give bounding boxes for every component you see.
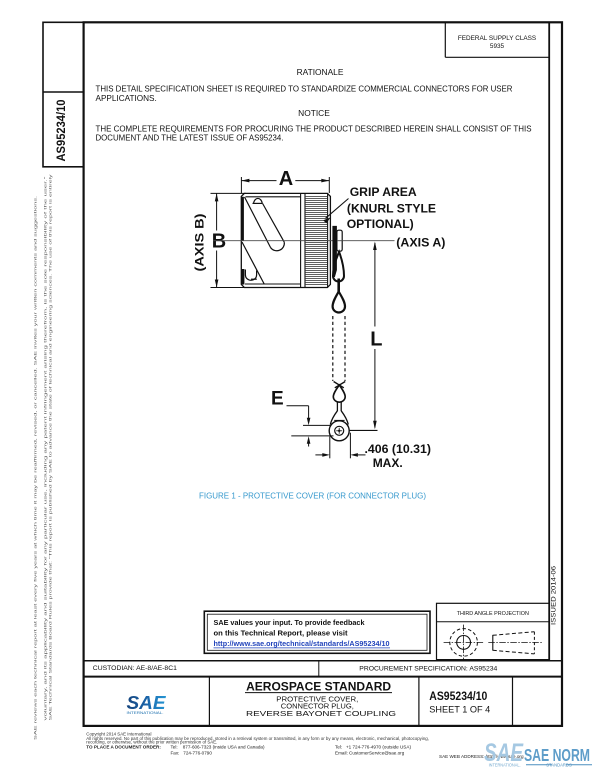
svg-text:MAX.: MAX. <box>373 456 403 470</box>
svg-text:.406 (10.31): .406 (10.31) <box>365 442 432 456</box>
svg-text:NOTICE: NOTICE <box>298 108 330 118</box>
svg-text:THIRD ANGLE PROJECTION: THIRD ANGLE PROJECTION <box>457 611 529 617</box>
svg-text:INTERNATIONAL.: INTERNATIONAL. <box>489 763 521 768</box>
svg-text:CUSTODIAN: AE-8/AE-8C1: CUSTODIAN: AE-8/AE-8C1 <box>93 665 177 672</box>
svg-text:voluntary, and its applicabili: voluntary, and its applicability and sui… <box>42 175 47 720</box>
svg-text:DOCUMENT AND THE LATEST ISSUE: DOCUMENT AND THE LATEST ISSUE OF AS95234… <box>96 134 284 143</box>
svg-text:L: L <box>370 329 382 351</box>
svg-text:SHEET 1 OF 4: SHEET 1 OF 4 <box>429 705 490 715</box>
svg-text:REVERSE BAYONET COUPLING: REVERSE BAYONET COUPLING <box>246 709 397 718</box>
svg-text:GRIP AREA: GRIP AREA <box>350 185 417 199</box>
svg-text:Email: CustomerService@sae.org: Email: CustomerService@sae.org <box>335 750 405 755</box>
svg-text:PROCUREMENT SPECIFICATION: AS9: PROCUREMENT SPECIFICATION: AS95234 <box>359 665 497 672</box>
svg-text:AS95234/10: AS95234/10 <box>54 99 68 161</box>
svg-text:SAE reviews each technical rep: SAE reviews each technical report at lea… <box>33 196 38 740</box>
svg-text:STANDARDS: STANDARDS <box>546 763 572 768</box>
svg-text:A: A <box>279 168 293 190</box>
svg-text:FEDERAL SUPPLY CLASS: FEDERAL SUPPLY CLASS <box>458 35 536 42</box>
svg-text:FIGURE 1 - PROTECTIVE COVER (F: FIGURE 1 - PROTECTIVE COVER (FOR CONNECT… <box>199 490 426 500</box>
svg-text:SAE: SAE <box>127 693 167 713</box>
svg-text:THIS DETAIL SPECIFICATION SHEE: THIS DETAIL SPECIFICATION SHEET IS REQUI… <box>96 85 513 94</box>
svg-text:5935: 5935 <box>490 43 505 50</box>
svg-text:THE COMPLETE REQUIREMENTS FOR: THE COMPLETE REQUIREMENTS FOR PROCURING … <box>96 124 533 133</box>
svg-text:Tel: +1 724-776-4970 (outsid: Tel: +1 724-776-4970 (outside USA) <box>335 745 411 750</box>
svg-text:ISSUED 2014-06: ISSUED 2014-06 <box>551 565 558 625</box>
svg-text:Fax: 724-776-0790: Fax: 724-776-0790 <box>171 750 213 755</box>
svg-text:Tel: 877-606-7323 (inside U: Tel: 877-606-7323 (inside USA and Canada… <box>171 745 265 750</box>
svg-text:APPLICATIONS.: APPLICATIONS. <box>96 94 157 103</box>
svg-text:(AXIS B): (AXIS B) <box>193 214 207 272</box>
svg-text:(AXIS A): (AXIS A) <box>396 235 445 249</box>
svg-text:E: E <box>271 389 284 410</box>
svg-text:SAE Technical Standards Board: SAE Technical Standards Board Rules prov… <box>48 174 53 720</box>
svg-text:B: B <box>212 230 226 252</box>
svg-text:on this Technical Report, plea: on this Technical Report, please visit <box>214 629 349 638</box>
svg-text:(KNURL STYLE: (KNURL STYLE <box>347 201 436 215</box>
svg-text:AEROSPACE STANDARD: AEROSPACE STANDARD <box>246 679 391 693</box>
svg-text:INTERNATIONAL.: INTERNATIONAL. <box>127 711 164 715</box>
svg-text:TO PLACE A DOCUMENT ORDER:: TO PLACE A DOCUMENT ORDER: <box>86 745 161 750</box>
svg-text:http://www.sae.org/technical/s: http://www.sae.org/technical/standards/A… <box>214 639 390 648</box>
svg-text:RATIONALE: RATIONALE <box>297 67 344 77</box>
svg-text:OPTIONAL): OPTIONAL) <box>347 217 414 231</box>
svg-text:AS95234/10: AS95234/10 <box>429 689 487 703</box>
svg-text:SAE values your input. To prov: SAE values your input. To provide feedba… <box>214 618 366 627</box>
